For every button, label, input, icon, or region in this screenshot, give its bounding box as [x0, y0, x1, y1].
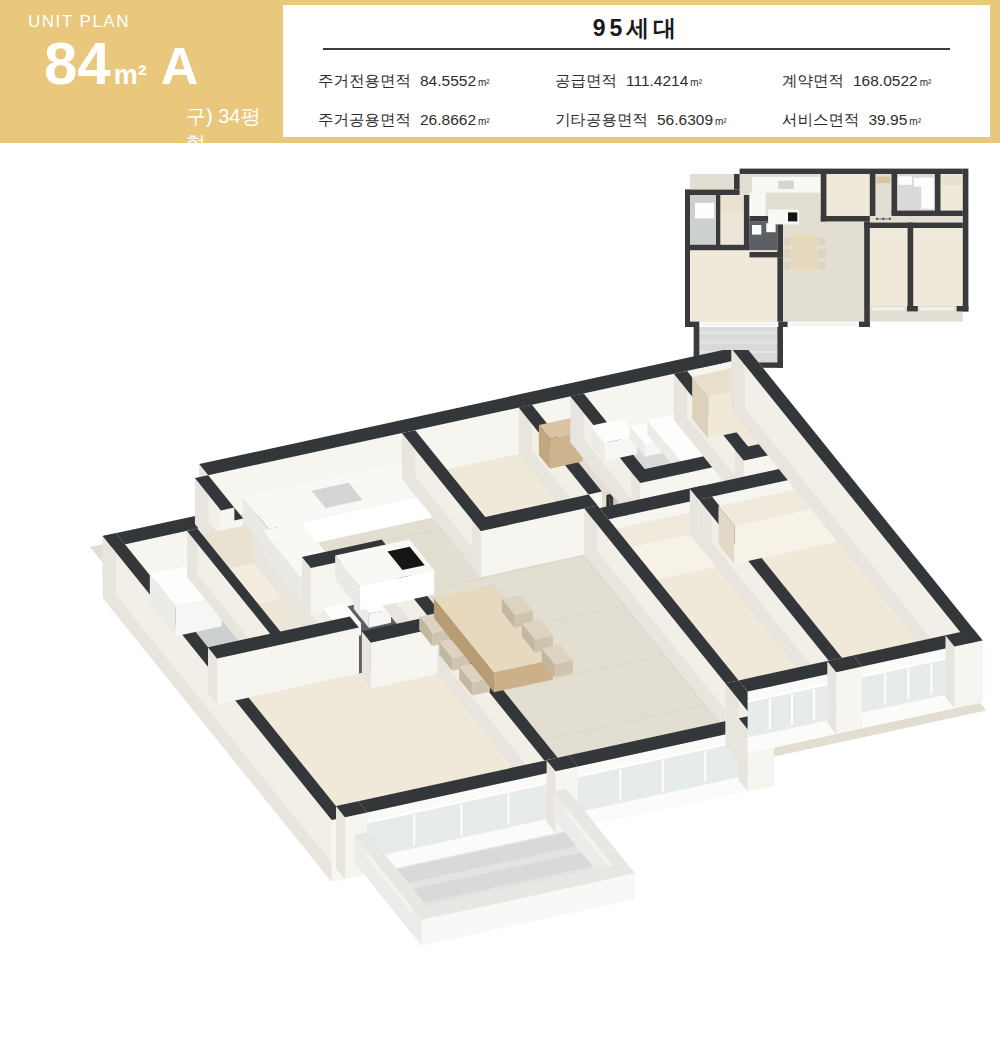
area-value: 56.6309 — [657, 111, 713, 129]
area-row-2: 주거공용면적 26.8662 m² 기타공용면적 56.6309 m² 서비스면… — [318, 101, 990, 140]
area-cell: 주거공용면적 26.8662 m² — [318, 110, 555, 131]
area-cell: 서비스면적 39.95 m² — [782, 110, 990, 131]
unit-2d-floorplan-image — [685, 168, 975, 370]
area-unit-suffix: m² — [909, 116, 921, 127]
area-value: 84.5552 — [420, 72, 476, 90]
area-info-table: 95세대 주거전용면적 84.5552 m² 공급면적 111.4214 m² … — [283, 5, 990, 137]
legacy-pyeong-label: 구) 34평형 — [186, 103, 280, 157]
area-cell: 주거전용면적 84.5552 m² — [318, 71, 555, 92]
unit-3d-floorplan-image — [0, 350, 1000, 1060]
area-unit-suffix: m² — [690, 77, 702, 88]
area-value: 26.8662 — [420, 111, 476, 129]
area-unit: m² — [114, 60, 147, 91]
household-count-title: 95세대 — [283, 5, 990, 44]
unit-plan-label: UNIT PLAN — [28, 12, 130, 32]
area-label: 주거공용면적 — [318, 110, 411, 131]
area-label: 공급면적 — [555, 71, 617, 92]
area-rows: 주거전용면적 84.5552 m² 공급면적 111.4214 m² 계약면적 … — [283, 50, 990, 140]
area-label: 서비스면적 — [782, 110, 860, 131]
area-number: 84 — [44, 34, 111, 94]
unit-area-title: 84 m² A — [44, 34, 198, 96]
unit-badge: UNIT PLAN 84 m² A 구) 34평형 — [0, 0, 280, 143]
header-band: UNIT PLAN 84 m² A 구) 34평형 95세대 주거전용면적 84… — [0, 0, 1000, 143]
area-label: 계약면적 — [782, 71, 844, 92]
area-cell: 공급면적 111.4214 m² — [555, 71, 782, 92]
area-value: 39.95 — [869, 111, 908, 129]
area-cell: 기타공용면적 56.6309 m² — [555, 110, 782, 131]
unit-type-letter: A — [161, 36, 199, 96]
area-unit-suffix: m² — [478, 77, 490, 88]
area-unit-suffix: m² — [715, 116, 727, 127]
area-value: 168.0522 — [853, 72, 918, 90]
area-unit-suffix: m² — [920, 77, 932, 88]
area-row-1: 주거전용면적 84.5552 m² 공급면적 111.4214 m² 계약면적 … — [318, 62, 990, 101]
area-label: 주거전용면적 — [318, 71, 411, 92]
area-label: 기타공용면적 — [555, 110, 648, 131]
area-value: 111.4214 — [626, 72, 688, 90]
area-unit-suffix: m² — [478, 116, 490, 127]
area-cell: 계약면적 168.0522 m² — [782, 71, 990, 92]
